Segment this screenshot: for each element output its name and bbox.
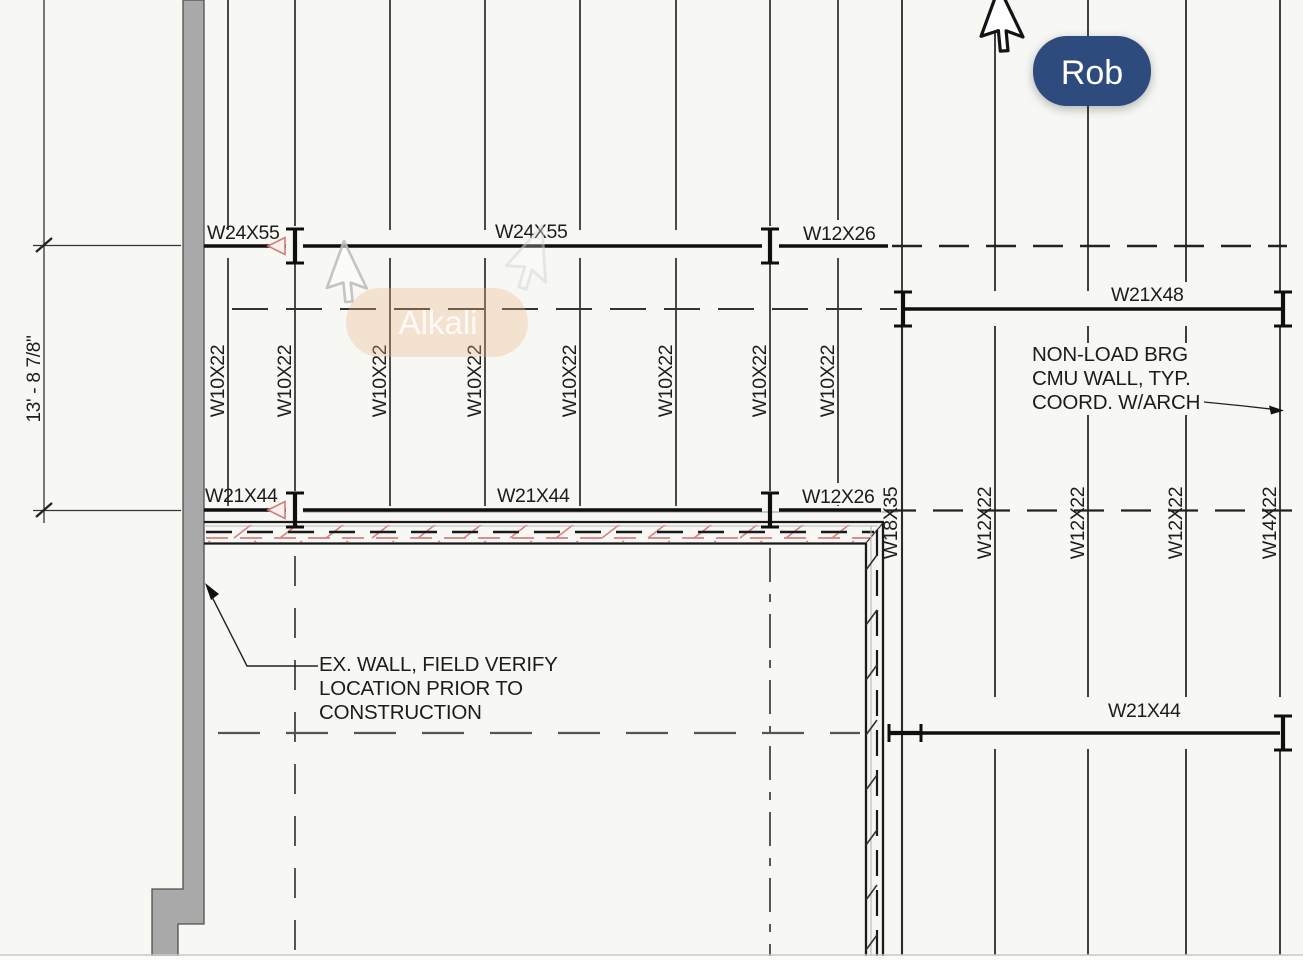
joist-label: W10X22 xyxy=(749,345,771,417)
beam-label: W12X26 xyxy=(802,486,874,508)
joist-label: W10X22 xyxy=(559,345,581,417)
beam-label: W21X48 xyxy=(1111,284,1183,306)
joist-label: W10X22 xyxy=(274,345,296,417)
page-margin xyxy=(0,956,1303,960)
joist-label: W10X22 xyxy=(655,345,677,417)
beam-label: W21X44 xyxy=(497,485,570,507)
drawing-viewport[interactable]: 13' - 8 7/8" xyxy=(0,0,1303,960)
infill-label: W12X22 xyxy=(974,487,996,559)
note-line: CMU WALL, TYP. xyxy=(1032,367,1191,390)
note-line: NON-LOAD BRG xyxy=(1032,343,1188,366)
beam-label: W21X44 xyxy=(205,485,278,507)
beam-label: W12X26 xyxy=(803,223,875,245)
stub-beam-label: W18X35 xyxy=(880,486,902,559)
alkali-name-label: Alkali xyxy=(399,304,478,341)
rob-presence-badge: Rob xyxy=(1033,36,1151,106)
note-line: COORD. W/ARCH xyxy=(1032,391,1200,414)
rob-name-label: Rob xyxy=(1061,54,1123,92)
structural-framing-plan[interactable]: 13' - 8 7/8" xyxy=(0,0,1303,960)
infill-label: W12X22 xyxy=(1165,487,1187,559)
infill-label: W12X22 xyxy=(1067,487,1089,559)
note-line: CONSTRUCTION xyxy=(319,701,482,724)
joist-label: W10X22 xyxy=(207,345,229,417)
note-line: LOCATION PRIOR TO xyxy=(319,677,523,700)
dimension-text: 13' - 8 7/8" xyxy=(24,335,45,422)
infill-label: W14X22 xyxy=(1259,487,1281,559)
note-line: EX. WALL, FIELD VERIFY xyxy=(319,653,558,676)
beam-label: W24X55 xyxy=(207,222,280,244)
beam-label: W21X44 xyxy=(1108,700,1181,722)
joist-label: W10X22 xyxy=(817,345,839,417)
alkali-presence-badge: Alkali xyxy=(346,288,528,357)
